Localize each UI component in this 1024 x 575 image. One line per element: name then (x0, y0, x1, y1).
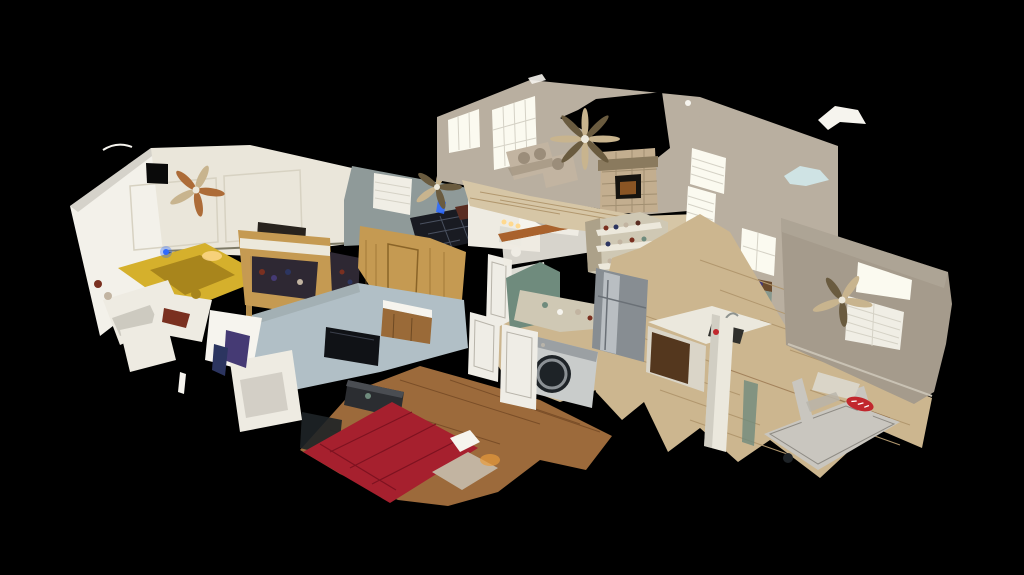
fire-glow (620, 181, 636, 195)
refrigerator (592, 268, 648, 362)
closet-door (388, 244, 418, 296)
treadmill-wheel (783, 453, 793, 463)
dollhouse-3d-viewport[interactable]: 3D dollhouse cutaway view of a single-st… (0, 0, 1024, 575)
attic-window (146, 163, 168, 184)
master-door-2 (500, 324, 538, 410)
shutter-panel (373, 173, 412, 215)
vanity-light (502, 220, 507, 225)
